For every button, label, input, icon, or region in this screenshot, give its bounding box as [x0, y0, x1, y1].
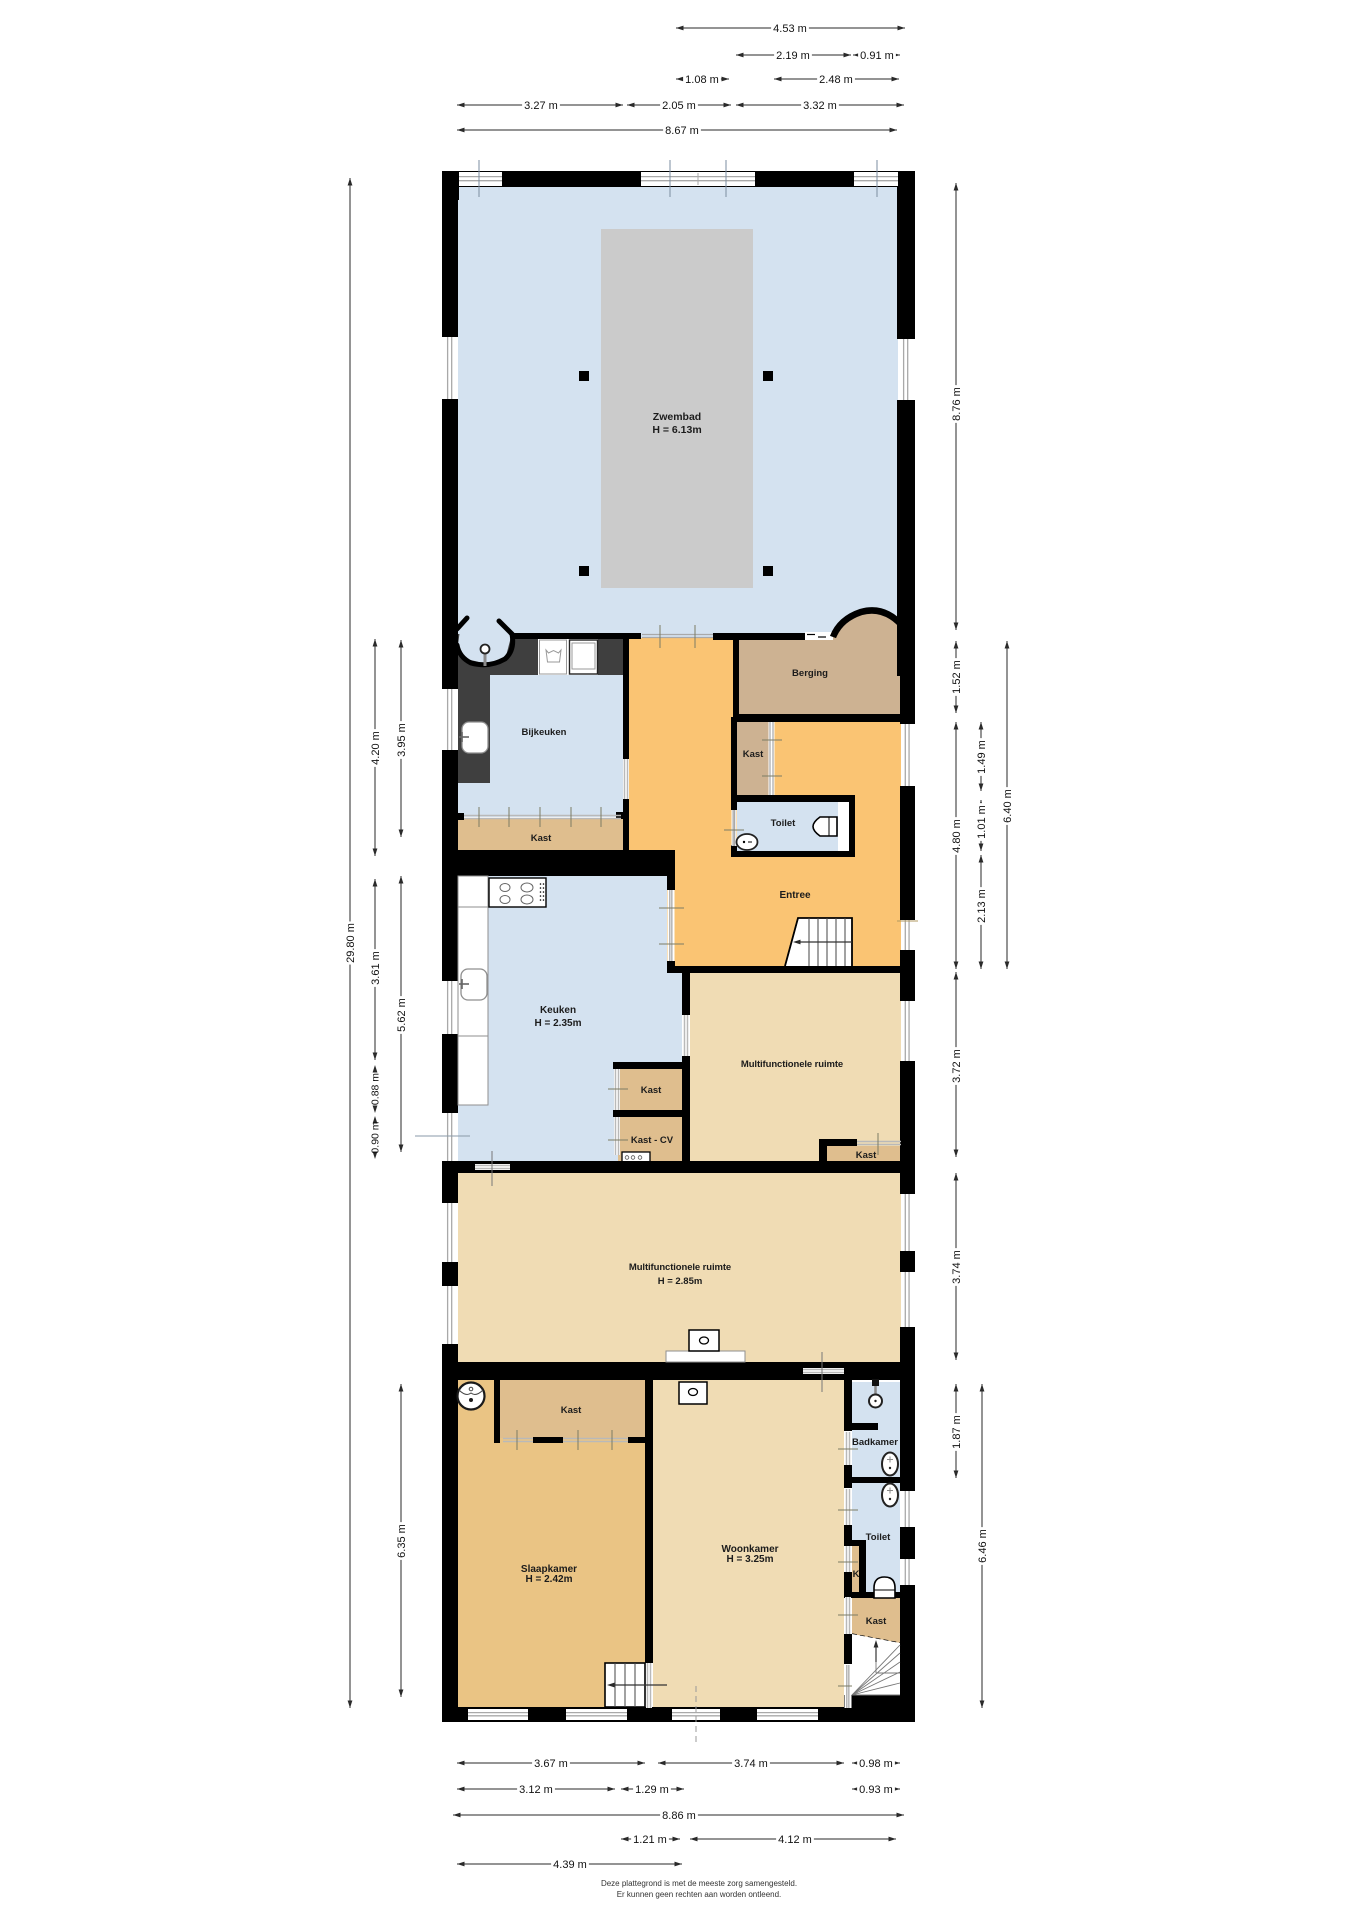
- svg-text:Berging: Berging: [792, 668, 828, 679]
- svg-text:3.12 m: 3.12 m: [519, 1784, 553, 1796]
- svg-text:H = 2.42m: H = 2.42m: [526, 1574, 573, 1585]
- svg-text:Keuken: Keuken: [540, 1005, 576, 1016]
- svg-text:3.74 m: 3.74 m: [734, 1758, 768, 1770]
- svg-text:2.19 m: 2.19 m: [776, 50, 810, 62]
- svg-text:Kast: Kast: [531, 833, 552, 844]
- svg-text:2.05 m: 2.05 m: [662, 100, 696, 112]
- svg-text:K: K: [853, 1569, 860, 1580]
- svg-text:8.76 m: 8.76 m: [951, 387, 963, 421]
- svg-text:Multifunctionele ruimte: Multifunctionele ruimte: [741, 1059, 843, 1070]
- svg-text:1.29 m: 1.29 m: [635, 1784, 669, 1796]
- svg-text:3.27 m: 3.27 m: [524, 100, 558, 112]
- svg-text:Kast: Kast: [856, 1150, 877, 1161]
- svg-text:8.67 m: 8.67 m: [665, 125, 699, 137]
- svg-text:Entree: Entree: [779, 890, 811, 901]
- svg-text:1.52 m: 1.52 m: [951, 660, 963, 694]
- svg-text:6.35 m: 6.35 m: [396, 1524, 408, 1558]
- svg-text:3.67 m: 3.67 m: [534, 1758, 568, 1770]
- svg-text:6.40 m: 6.40 m: [1002, 789, 1014, 823]
- svg-text:Kast: Kast: [866, 1616, 887, 1627]
- svg-text:Zwembad: Zwembad: [653, 411, 701, 423]
- svg-text:Kast: Kast: [641, 1085, 662, 1096]
- svg-text:H = 6.13m: H = 6.13m: [652, 424, 701, 436]
- svg-text:Kast: Kast: [561, 1405, 582, 1416]
- svg-text:1.01 m: 1.01 m: [976, 805, 988, 839]
- svg-text:1.87 m: 1.87 m: [951, 1415, 963, 1449]
- svg-text:Badkamer: Badkamer: [852, 1437, 898, 1448]
- svg-text:Multifunctionele ruimte: Multifunctionele ruimte: [629, 1262, 731, 1273]
- svg-text:0.98 m: 0.98 m: [859, 1758, 893, 1770]
- svg-text:4.39 m: 4.39 m: [553, 1859, 587, 1871]
- svg-text:4.80 m: 4.80 m: [951, 819, 963, 853]
- svg-text:3.72 m: 3.72 m: [951, 1049, 963, 1083]
- svg-text:3.32 m: 3.32 m: [803, 100, 837, 112]
- svg-text:4.12 m: 4.12 m: [778, 1834, 812, 1846]
- svg-text:1.08 m: 1.08 m: [685, 74, 719, 86]
- svg-text:Kast: Kast: [743, 749, 764, 760]
- svg-text:8.86 m: 8.86 m: [662, 1810, 696, 1822]
- svg-text:0.90 m: 0.90 m: [370, 1121, 382, 1153]
- svg-text:Toilet: Toilet: [771, 818, 796, 829]
- svg-text:2.48 m: 2.48 m: [819, 74, 853, 86]
- svg-text:1.49 m: 1.49 m: [976, 740, 988, 774]
- svg-text:2.13 m: 2.13 m: [976, 889, 988, 923]
- svg-text:H = 3.25m: H = 3.25m: [727, 1554, 774, 1565]
- svg-text:1.21 m: 1.21 m: [633, 1834, 667, 1846]
- svg-text:5.62 m: 5.62 m: [396, 998, 408, 1032]
- svg-text:3.95 m: 3.95 m: [396, 723, 408, 757]
- svg-text:Kast - CV: Kast - CV: [631, 1135, 674, 1146]
- svg-text:H = 2.85m: H = 2.85m: [658, 1276, 703, 1287]
- svg-text:0.88 m: 0.88 m: [370, 1073, 382, 1105]
- svg-text:H = 2.35m: H = 2.35m: [535, 1018, 582, 1029]
- svg-text:4.53 m: 4.53 m: [773, 23, 807, 35]
- svg-text:29.80 m: 29.80 m: [345, 923, 357, 963]
- svg-text:0.93 m: 0.93 m: [859, 1784, 893, 1796]
- svg-text:6.46 m: 6.46 m: [977, 1529, 989, 1563]
- svg-text:3.61 m: 3.61 m: [370, 951, 382, 985]
- svg-text:Er kunnen geen rechten aan wor: Er kunnen geen rechten aan worden ontlee…: [617, 1890, 782, 1899]
- svg-text:0.91 m: 0.91 m: [860, 50, 894, 62]
- svg-text:3.74 m: 3.74 m: [951, 1250, 963, 1284]
- svg-text:Bijkeuken: Bijkeuken: [522, 727, 567, 738]
- svg-text:Deze plattegrond is met de mee: Deze plattegrond is met de meeste zorg s…: [601, 1879, 797, 1888]
- svg-text:4.20 m: 4.20 m: [370, 731, 382, 765]
- svg-text:Toilet: Toilet: [866, 1532, 891, 1543]
